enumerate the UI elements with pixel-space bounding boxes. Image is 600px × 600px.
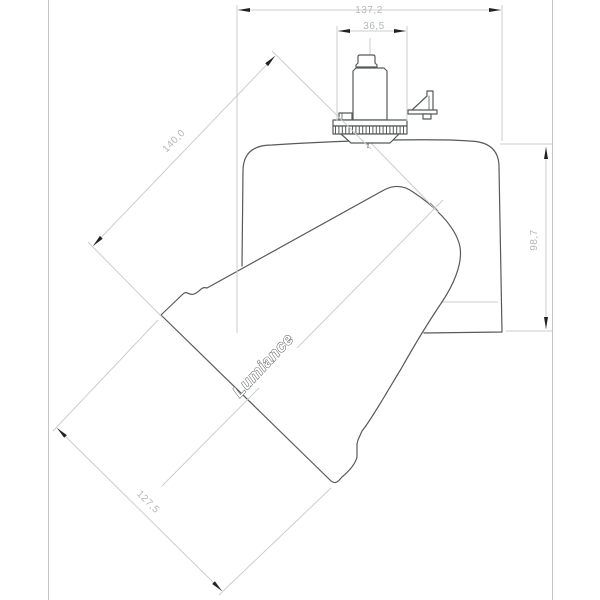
mounting-bracket <box>408 91 437 119</box>
arrowhead-lower <box>93 236 103 246</box>
extension-line <box>53 320 158 431</box>
bracket-arm <box>412 91 433 110</box>
beam-axis-lower <box>162 388 259 486</box>
dimension-line <box>57 428 222 591</box>
arrowhead-top <box>544 147 548 159</box>
arrowhead-upper <box>57 428 67 438</box>
spotlight-dimension-drawing: 137,2 36,5 140,0 98,7 127,5 Lumianc <box>0 0 600 600</box>
arrowhead-left <box>238 8 250 12</box>
adapter-knob <box>356 55 377 67</box>
adapter-body <box>353 68 387 120</box>
track-adapter <box>333 55 407 143</box>
adapter-skirt <box>341 134 399 143</box>
arrowhead-upper <box>265 56 275 66</box>
arrowhead-bottom <box>544 317 548 329</box>
bracket-foot <box>423 114 431 119</box>
dim-adapter-width-label: 36,5 <box>363 21 384 32</box>
arrowhead-left <box>338 29 350 33</box>
dim-height: 98,7 <box>500 144 552 331</box>
arrowhead-right <box>489 8 501 12</box>
extension-line <box>88 242 162 317</box>
arrowhead-right <box>394 29 406 33</box>
dim-head-length-label: 127,5 <box>134 489 161 516</box>
dim-height-label: 98,7 <box>529 229 540 250</box>
bracket-base <box>408 110 437 114</box>
extension-line <box>219 488 331 595</box>
arrowhead-lower <box>212 581 222 591</box>
technical-drawing-sheet: 137,2 36,5 140,0 98,7 127,5 Lumianc <box>0 0 600 600</box>
dim-overall-width-label: 137,2 <box>355 5 383 16</box>
